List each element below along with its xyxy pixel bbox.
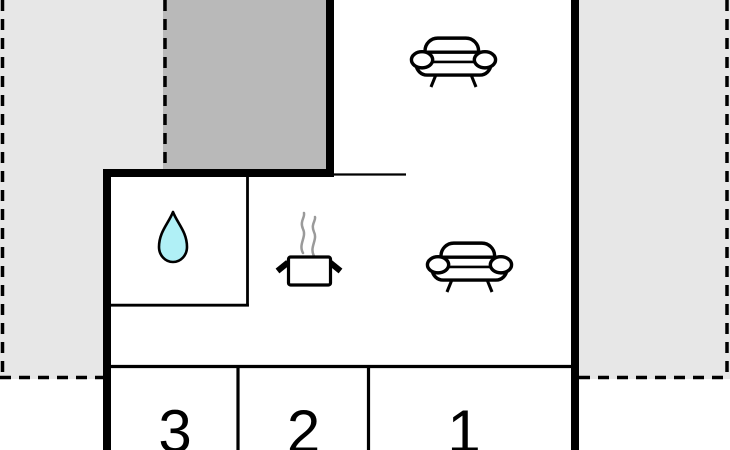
sofa-icon — [427, 243, 511, 292]
room-label-3: 3 — [158, 398, 191, 450]
wall-left — [103, 169, 111, 450]
wall-annex-right — [326, 0, 334, 177]
water-drop-icon — [159, 212, 187, 262]
room-label-1: 1 — [447, 398, 480, 450]
terrace-right — [579, 0, 730, 379]
floor-plan-drawing: 3 2 1 — [0, 0, 730, 450]
cooking-pot-icon — [278, 213, 341, 285]
pot-handle-left — [278, 263, 289, 272]
pot-body — [289, 257, 331, 285]
annex-room — [163, 0, 326, 169]
floor-plan: 3 2 1 — [0, 0, 730, 450]
room-label-2: 2 — [287, 398, 320, 450]
sofa-icon — [411, 38, 495, 87]
terrace-left — [0, 0, 165, 379]
steam-line — [312, 217, 315, 256]
wall-right — [571, 0, 579, 450]
wall-upper-horizontal — [103, 169, 334, 177]
steam-line — [301, 213, 304, 253]
